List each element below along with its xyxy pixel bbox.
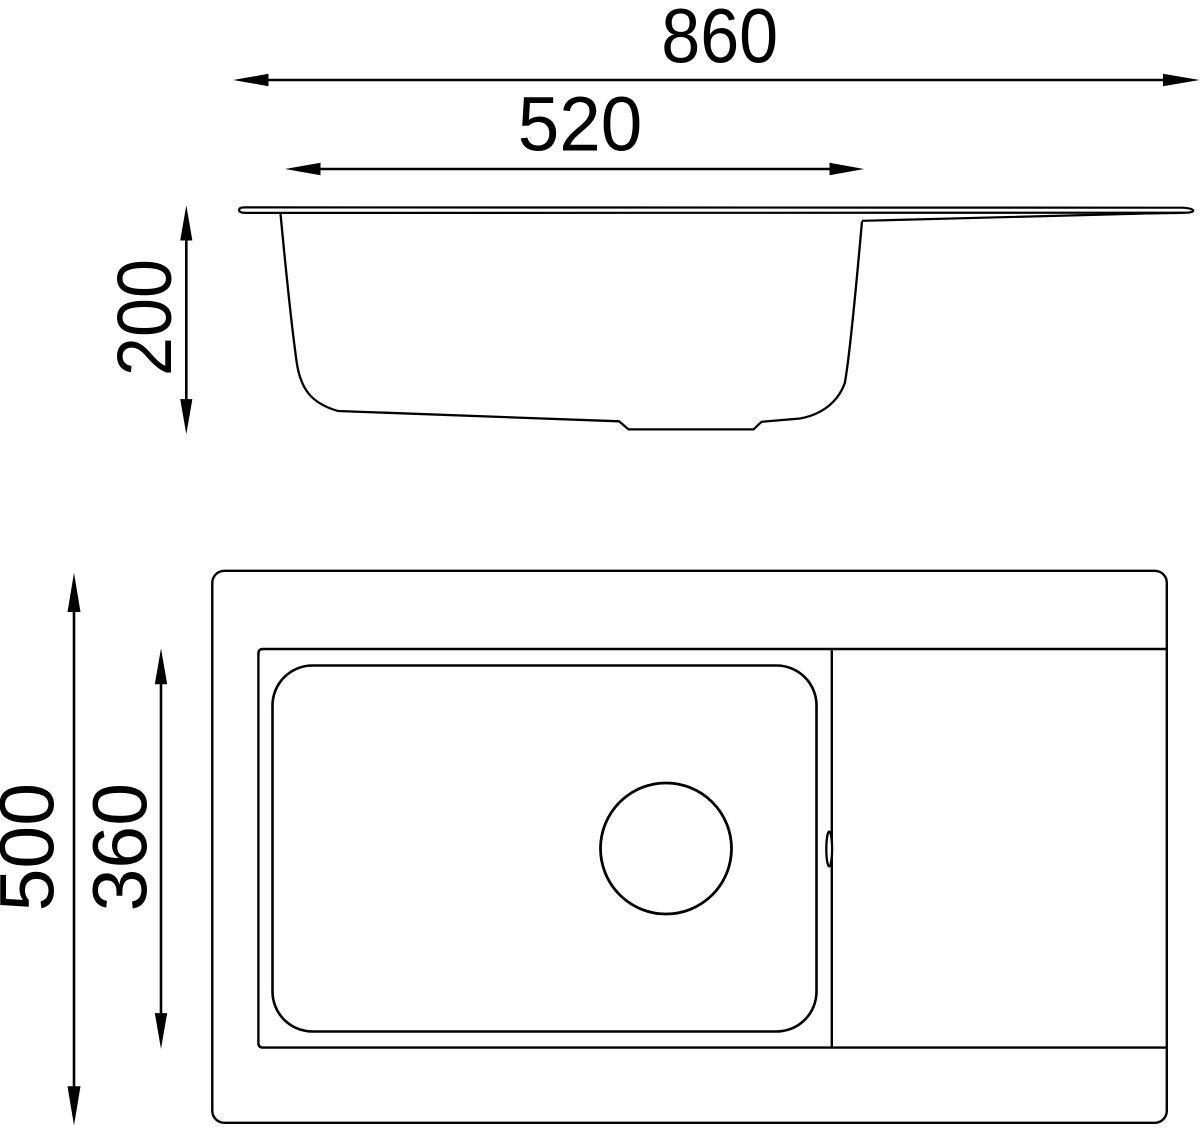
svg-text:360: 360 <box>77 783 163 911</box>
svg-text:200: 200 <box>101 259 188 376</box>
svg-text:520: 520 <box>518 81 643 167</box>
svg-text:860: 860 <box>661 0 778 79</box>
svg-text:500: 500 <box>0 783 70 911</box>
